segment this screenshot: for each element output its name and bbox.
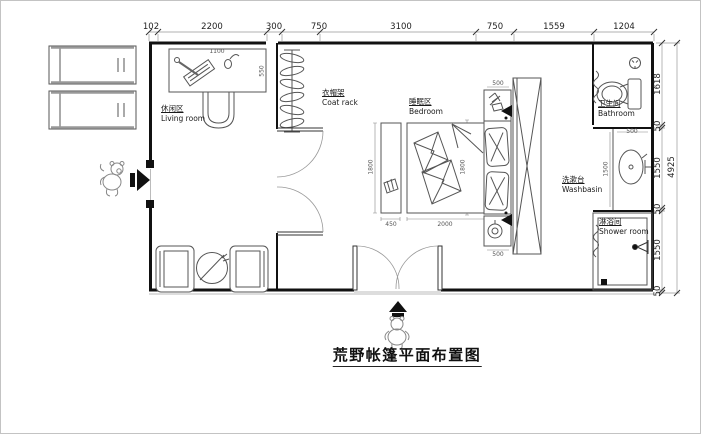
- dim-right-1550a: 1550: [653, 157, 663, 179]
- dim-desk-width: 1100: [209, 48, 224, 55]
- double-door-entry: [353, 246, 442, 290]
- coat-rack-icon: [279, 50, 304, 132]
- dim-right-50c: 50: [653, 286, 663, 297]
- drawing-title: 荒野帐篷平面布置图: [333, 344, 482, 367]
- bear-figure-left: [100, 162, 124, 197]
- dim-top-3100: 3100: [390, 22, 412, 32]
- room-label-coat-rack-en: Coat rack: [322, 98, 358, 108]
- entrance-arrow-bottom-icon: [389, 301, 407, 317]
- dim-top-1204: 1204: [613, 22, 635, 32]
- dim-basin-width: 500: [626, 128, 637, 135]
- coffee-table: [197, 253, 230, 284]
- room-label-living: 休闲区 Living room: [161, 104, 205, 124]
- sunbed-bottom: [49, 91, 136, 129]
- double-door-central: [277, 128, 323, 235]
- room-label-bedroom-en: Bedroom: [409, 107, 443, 117]
- dim-bed-length-left: 1800: [368, 159, 375, 174]
- room-label-coat-rack: 衣帽架 Coat rack: [322, 88, 358, 108]
- armchair-right: [230, 246, 268, 292]
- bed: [407, 123, 484, 213]
- room-label-bedroom-zh: 睡眠区: [409, 97, 443, 107]
- dim-nightstand-bottom: 500: [492, 251, 503, 258]
- room-label-washbasin-en: Washbasin: [562, 185, 602, 195]
- desk: [169, 49, 266, 92]
- dim-right-50b: 50: [653, 204, 663, 215]
- entrance-arrow-left-icon: [130, 169, 150, 191]
- dim-top-750b: 750: [487, 22, 503, 32]
- dim-top-2200: 2200: [201, 22, 223, 32]
- floor-plan-drawing: [1, 1, 701, 434]
- room-label-bedroom: 睡眠区 Bedroom: [409, 97, 443, 117]
- bed-head-pillows: [484, 121, 511, 214]
- dim-bench-width: 450: [385, 221, 396, 228]
- ceiling-light-icon: [630, 58, 641, 69]
- dim-right-total-4925: 4925: [667, 156, 677, 178]
- dim-nightstand-top: 500: [492, 80, 503, 87]
- room-label-bathroom-en: Bathroom: [598, 109, 635, 119]
- dim-top-300: 300: [266, 22, 282, 32]
- room-label-shower-en: Shower room: [599, 227, 649, 237]
- dim-desk-depth: 550: [259, 65, 266, 76]
- dim-top-1559: 1559: [543, 22, 565, 32]
- room-label-bathroom: 卫生间 Bathroom: [598, 99, 635, 119]
- dim-right-1618: 1618: [653, 73, 663, 95]
- dim-bed-width: 2000: [437, 221, 452, 228]
- washbasin-counter: [613, 129, 651, 210]
- room-label-washbasin: 洗漱台 Washbasin: [562, 175, 602, 195]
- floor-plan-canvas: 102 2200 300 750 3100 750 1559 1204 1618…: [0, 0, 701, 434]
- dim-top-750a: 750: [311, 22, 327, 32]
- floor-drain-icon: [601, 279, 607, 285]
- room-label-bathroom-zh: 卫生间: [598, 99, 635, 109]
- room-label-shower-zh: 淋浴间: [599, 217, 649, 227]
- wardrobe: [513, 78, 541, 254]
- dim-basin-counter: 1500: [603, 161, 610, 176]
- shower-head-icon: [633, 240, 649, 254]
- nightstand-top: [484, 90, 511, 121]
- sunbed-top: [49, 46, 136, 84]
- bed-bench: [381, 123, 401, 213]
- dim-right-50a: 50: [653, 121, 663, 132]
- room-label-shower: 淋浴间 Shower room: [599, 217, 649, 237]
- desk-chair: [203, 92, 234, 128]
- room-label-washbasin-zh: 洗漱台: [562, 175, 602, 185]
- dim-bed-length-mid: 1800: [460, 159, 467, 174]
- dim-top-102: 102: [143, 22, 159, 32]
- dim-right-1550b: 1550: [653, 239, 663, 261]
- room-label-living-zh: 休闲区: [161, 104, 205, 114]
- armchair-left: [156, 246, 194, 292]
- room-label-living-en: Living room: [161, 114, 205, 124]
- room-label-coat-rack-zh: 衣帽架: [322, 88, 358, 98]
